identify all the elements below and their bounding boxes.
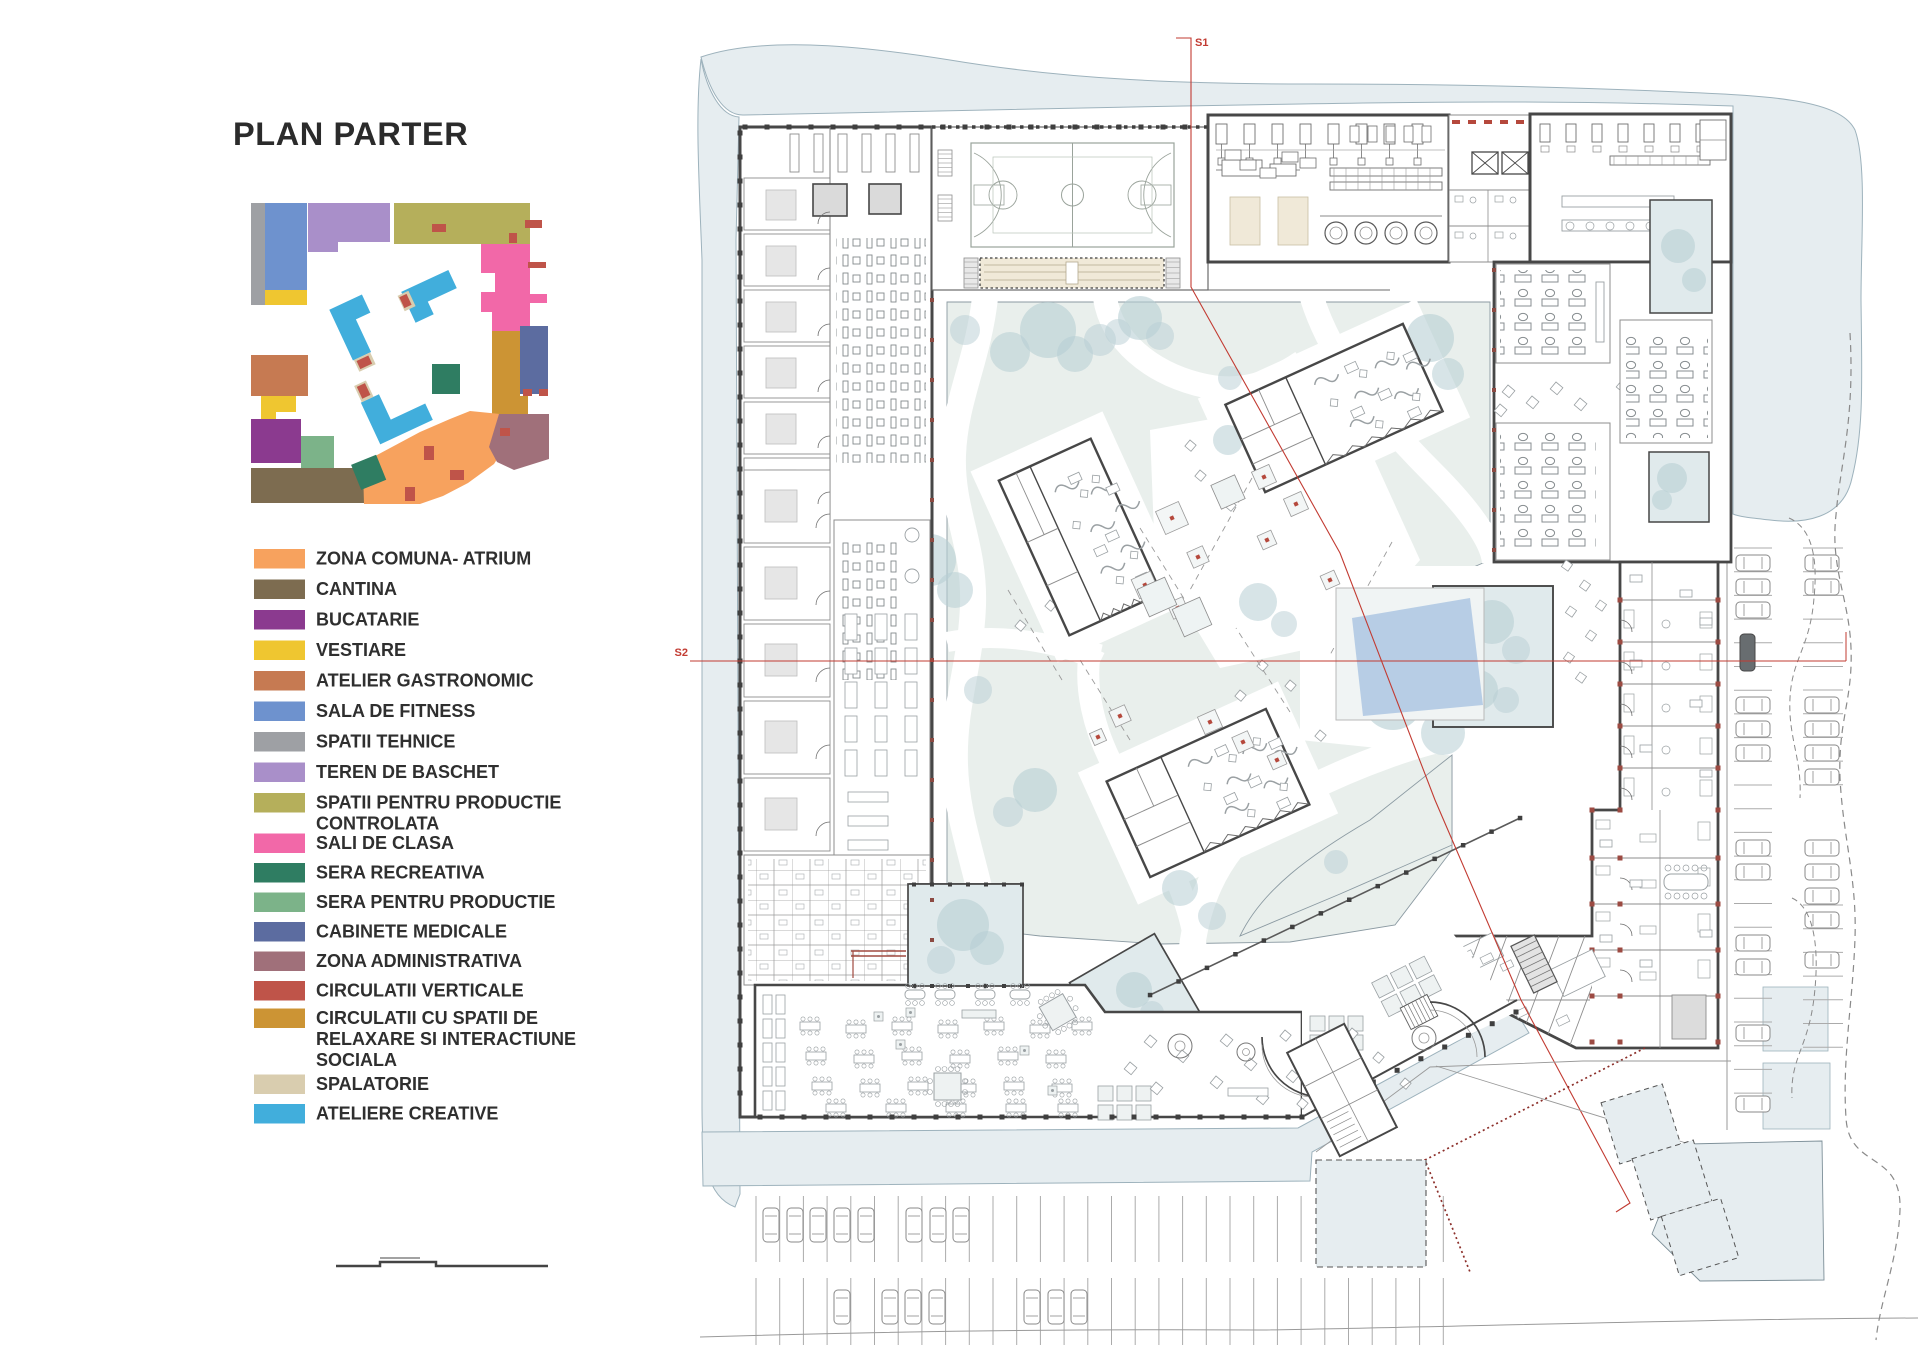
svg-text:SERA PENTRU PRODUCTIE: SERA PENTRU PRODUCTIE	[316, 892, 555, 912]
svg-text:CIRCULATII VERTICALE: CIRCULATII VERTICALE	[316, 981, 524, 1001]
svg-text:ATELIERE CREATIVE: ATELIERE CREATIVE	[316, 1104, 498, 1124]
svg-text:ATELIER GASTRONOMIC: ATELIER GASTRONOMIC	[316, 671, 534, 691]
svg-text:BUCATARIE: BUCATARIE	[316, 610, 419, 630]
svg-text:RELAXARE SI INTERACTIUNE: RELAXARE SI INTERACTIUNE	[316, 1029, 576, 1049]
svg-text:S1: S1	[1195, 37, 1208, 49]
svg-text:SOCIALA: SOCIALA	[316, 1050, 397, 1070]
svg-text:SALI DE CLASA: SALI DE CLASA	[316, 833, 454, 853]
svg-text:PLAN PARTER: PLAN PARTER	[233, 116, 468, 152]
svg-text:SERA RECREATIVA: SERA RECREATIVA	[316, 863, 485, 883]
svg-text:CABINETE MEDICALE: CABINETE MEDICALE	[316, 922, 507, 942]
svg-text:SPATII PENTRU PRODUCTIE: SPATII PENTRU PRODUCTIE	[316, 793, 561, 813]
svg-text:VESTIARE: VESTIARE	[316, 640, 406, 660]
svg-text:ZONA ADMINISTRATIVA: ZONA ADMINISTRATIVA	[316, 951, 522, 971]
svg-text:CONTROLATA: CONTROLATA	[316, 814, 439, 834]
svg-text:S2: S2	[675, 647, 688, 659]
svg-text:TEREN DE BASCHET: TEREN DE BASCHET	[316, 762, 499, 782]
svg-text:SALA DE FITNESS: SALA DE FITNESS	[316, 701, 475, 721]
svg-text:SPALATORIE: SPALATORIE	[316, 1074, 429, 1094]
svg-text:SPATII TEHNICE: SPATII TEHNICE	[316, 732, 455, 752]
svg-text:CANTINA: CANTINA	[316, 579, 397, 599]
svg-text:CIRCULATII CU SPATII DE: CIRCULATII CU SPATII DE	[316, 1008, 538, 1028]
svg-text:ZONA COMUNA- ATRIUM: ZONA COMUNA- ATRIUM	[316, 549, 531, 569]
